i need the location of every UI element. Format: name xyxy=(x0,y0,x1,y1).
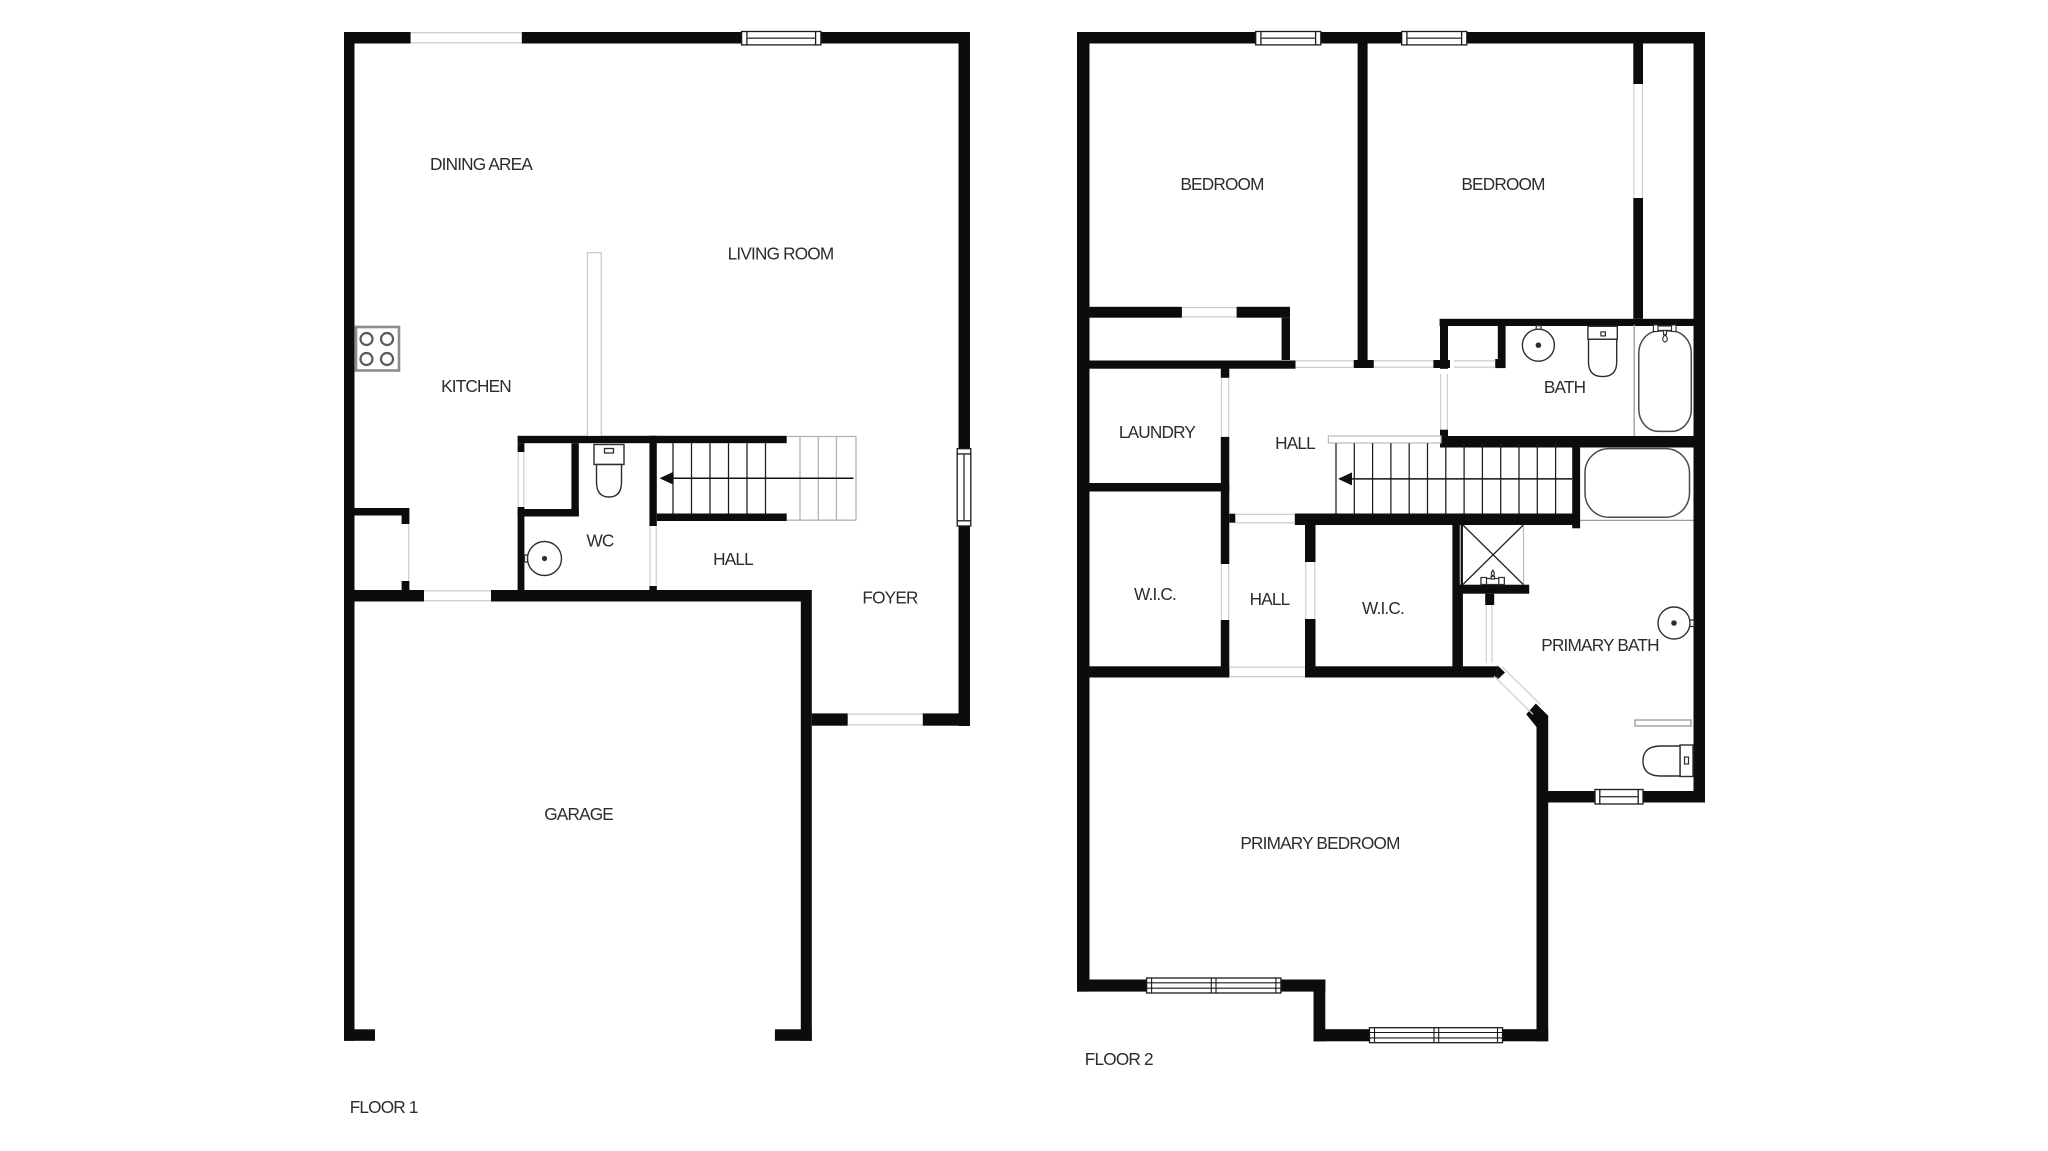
svg-text:W.I.C.: W.I.C. xyxy=(1134,584,1176,604)
svg-text:HALL: HALL xyxy=(1275,433,1315,453)
svg-text:PRIMARY BEDROOM: PRIMARY BEDROOM xyxy=(1240,833,1399,853)
svg-text:HALL: HALL xyxy=(1250,589,1290,609)
svg-text:GARAGE: GARAGE xyxy=(544,804,613,824)
svg-text:FLOOR 2: FLOOR 2 xyxy=(1085,1049,1153,1069)
svg-text:BATH: BATH xyxy=(1544,377,1586,397)
svg-text:WC: WC xyxy=(586,531,613,551)
svg-text:BEDROOM: BEDROOM xyxy=(1461,174,1544,194)
svg-text:KITCHEN: KITCHEN xyxy=(441,376,511,396)
svg-text:HALL: HALL xyxy=(713,549,753,569)
svg-text:FLOOR 1: FLOOR 1 xyxy=(350,1097,418,1117)
svg-text:LAUNDRY: LAUNDRY xyxy=(1119,422,1197,442)
svg-text:LIVING ROOM: LIVING ROOM xyxy=(728,244,834,264)
svg-text:BEDROOM: BEDROOM xyxy=(1180,174,1263,194)
svg-text:FOYER: FOYER xyxy=(862,588,918,608)
svg-text:DINING AREA: DINING AREA xyxy=(430,154,533,174)
svg-text:PRIMARY BATH: PRIMARY BATH xyxy=(1541,635,1659,655)
svg-text:W.I.C.: W.I.C. xyxy=(1362,598,1404,618)
